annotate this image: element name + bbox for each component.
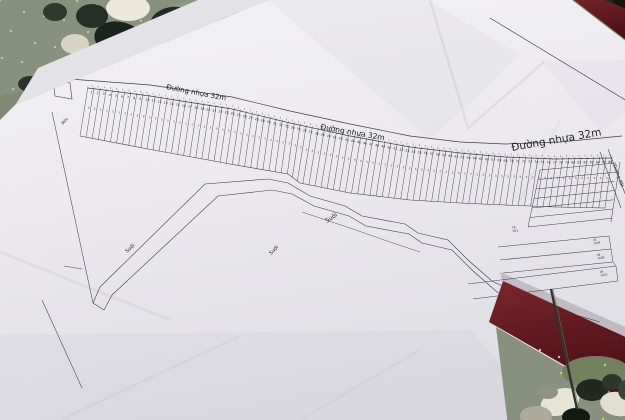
lot-number: 47: [369, 142, 374, 147]
lot-number: 18: [194, 105, 199, 110]
lot-number: 12: [157, 100, 162, 105]
lot-number: 73: [528, 160, 532, 164]
moss-flower-dot: [54, 46, 56, 48]
lot-number: 84: [596, 160, 600, 164]
lot-number: 34: [290, 125, 295, 130]
lot-number: 69: [503, 159, 507, 163]
lot-number: 80: [571, 160, 575, 164]
survey-plan-photo: 1552553554555556557558559551055115512551…: [0, 0, 625, 420]
lot-number: 37: [308, 130, 313, 135]
lot-number: 38: [314, 131, 319, 136]
moss-flower-dot: [34, 42, 36, 44]
lot-number: 49: [381, 144, 386, 149]
lot-number: 20: [206, 107, 211, 112]
lot-number: 14: [169, 102, 174, 107]
lot-number: 16: [182, 103, 187, 108]
moss-flower-dot: [1, 57, 3, 59]
pebble: [43, 3, 67, 21]
lot-number: 54: [411, 149, 416, 153]
moss-flower-dot: [23, 11, 25, 13]
lot-number: 24: [230, 111, 235, 116]
lot-number: 77: [553, 161, 557, 165]
lot-number: 63: [466, 156, 470, 160]
lot-number: 53: [405, 149, 410, 154]
moss-flower-dot: [63, 19, 65, 21]
lot-number: 13: [163, 101, 168, 106]
lot-number: 68: [497, 158, 501, 162]
lot-number: 43: [344, 138, 349, 143]
lot-number: 19: [200, 106, 205, 111]
lot-number: 67: [491, 158, 495, 162]
lot-number: 60: [448, 154, 453, 158]
moss-flower-dot: [87, 31, 89, 33]
pebble: [76, 4, 108, 28]
lot-number: 22: [218, 109, 223, 114]
lot-number: 78: [559, 161, 563, 165]
lot-number: 72: [522, 159, 526, 163]
lot-number: 39: [320, 132, 325, 137]
moss-flower-dot: [21, 61, 23, 63]
survey-plan-scene: 1552553554555556557558559551055115512551…: [0, 0, 625, 420]
lot-number: 44: [350, 139, 355, 144]
lot-number: 66: [485, 157, 489, 161]
lot-number: 83: [590, 160, 594, 164]
moss-flower-dot: [10, 30, 12, 32]
lot-number: 42: [338, 136, 343, 141]
lot-number: 48: [375, 143, 380, 148]
lot-number: 81: [577, 160, 581, 164]
lot-number: 45: [357, 140, 362, 145]
lot-number: 59: [442, 153, 447, 157]
lot-number: 11: [151, 99, 156, 104]
lot-number: 23: [224, 110, 229, 115]
lot-number: 41: [332, 135, 337, 140]
lot-number: 35: [296, 127, 301, 132]
lot-number: 51: [393, 146, 398, 151]
lot-number: 50: [387, 145, 392, 150]
lot-number: 74: [534, 160, 538, 164]
lot-number: 10: [145, 98, 150, 102]
lot-number: 58: [436, 152, 441, 156]
lot-number: 15: [176, 102, 181, 107]
lot-number: 70: [510, 159, 514, 163]
lot-number: 79: [565, 161, 569, 165]
moss-flower-dot: [140, 20, 142, 22]
lot-number: 76: [547, 160, 551, 164]
lot-number: 64: [473, 156, 477, 160]
lot-number: 71: [516, 159, 520, 163]
lot-number: 36: [302, 128, 307, 133]
lot-number: 52: [399, 147, 404, 152]
lot-number: 75: [540, 160, 544, 164]
pebble: [538, 385, 558, 399]
lot-number: 65: [479, 157, 483, 161]
moss-flower-dot: [12, 88, 14, 90]
lot-number: 55: [417, 150, 422, 154]
moss-flower-dot: [76, 0, 78, 2]
lot-number: 40: [326, 134, 331, 139]
lot-number: 21: [212, 108, 217, 113]
lot-number: 82: [583, 160, 587, 164]
lot-number: 62: [460, 155, 464, 159]
lot-number: 46: [363, 141, 368, 146]
lot-number: 56: [424, 151, 429, 155]
lot-number: 17: [188, 104, 193, 109]
lot-number: 61: [454, 154, 459, 158]
lot-number: 57: [430, 152, 435, 156]
